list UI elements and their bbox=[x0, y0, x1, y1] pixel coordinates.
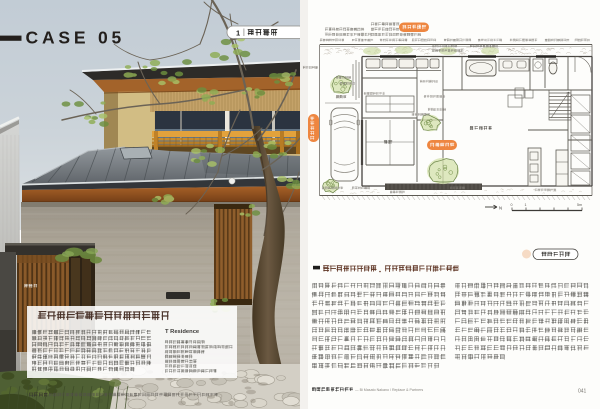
svg-text:N: N bbox=[499, 206, 502, 211]
svg-text:CASE 05: CASE 05 bbox=[26, 28, 126, 48]
svg-text:5m: 5m bbox=[577, 203, 582, 207]
svg-text:1: 1 bbox=[525, 203, 527, 207]
svg-text:1: 1 bbox=[236, 29, 240, 38]
svg-text:T Residence: T Residence bbox=[165, 329, 200, 335]
svg-text:0: 0 bbox=[511, 203, 513, 207]
svg-text:041: 041 bbox=[578, 389, 587, 395]
svg-text:— Bi Masato Nakano / Replace &: — Bi Masato Nakano / Replace & Partners bbox=[355, 388, 423, 392]
